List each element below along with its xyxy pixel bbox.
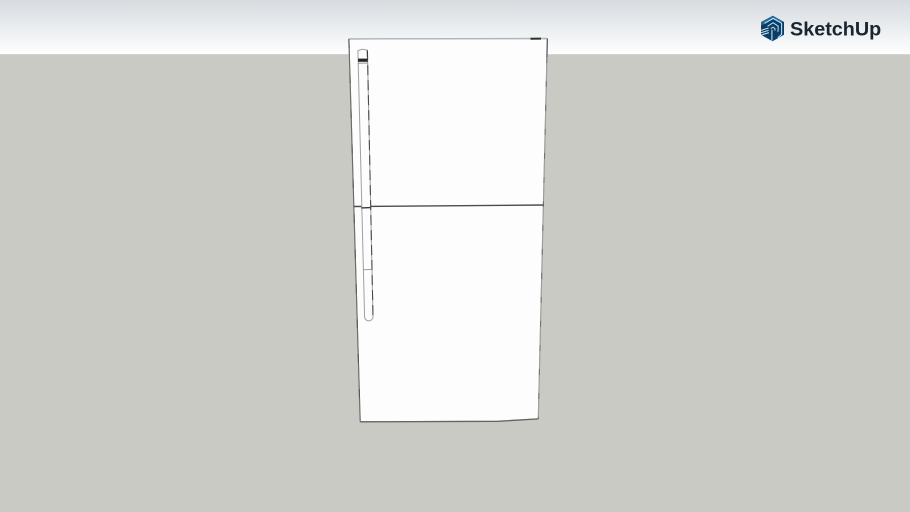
svg-text:SketchUp: SketchUp <box>790 19 881 41</box>
